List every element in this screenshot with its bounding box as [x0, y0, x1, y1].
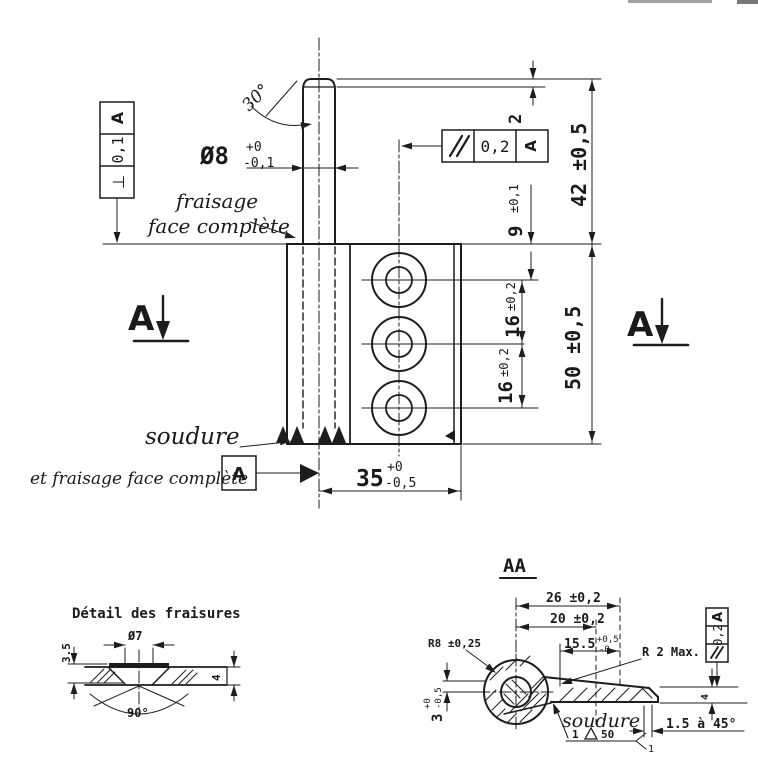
dim-chamfer: 1.5 à 45° [630, 705, 744, 737]
detail-plate-section [85, 650, 227, 712]
fcf-perp-datum: A [108, 111, 127, 124]
dim-chamfer-value: 1.5 à 45° [666, 717, 736, 732]
dim-35-toldn: -0,5 [385, 476, 416, 491]
dim-35-tolup: +0 [387, 460, 403, 475]
dim-20-value: 20 ±0,2 [550, 612, 605, 627]
datum-triangle-icon [300, 464, 319, 483]
dim-155: 15.5 +0,5 -0 [560, 635, 620, 686]
section-arrow-icon [156, 321, 170, 340]
dim-16b-tol: ±0,2 [497, 348, 511, 377]
dim-9-value: 9 [505, 226, 527, 237]
engineering-drawing-page: A 0,1 ⊥ 0,2 A 30° [0, 0, 758, 783]
weld-size: 1 [572, 728, 579, 741]
fcf-par-datum: A [522, 140, 540, 152]
dim-16b-value: 16 [495, 381, 517, 404]
fcf-parallelism: 0,2 A [401, 130, 548, 162]
dim-16a-value: 16 [502, 315, 524, 338]
dim-4-aa: 4 [660, 669, 747, 720]
section-aa-view: AA [423, 555, 747, 755]
section-marker-right-label: A [627, 305, 654, 345]
dim-155-toldn: -0 [599, 645, 610, 655]
dim-angle-value: 90° [127, 706, 149, 720]
dim-35-value: 35 [356, 466, 384, 492]
perpendicularity-icon: ⊥ [109, 175, 128, 189]
dim-dia7-value: Ø7 [127, 629, 142, 643]
section-marker-right: A [627, 299, 688, 345]
dim-155-tolup: +0,5 [597, 635, 619, 645]
parallelism-icon [450, 136, 469, 156]
dim-depth-value: 3.5 [60, 643, 73, 663]
datum-a-label: A [232, 464, 246, 485]
note-fraisage-line1: fraisage [174, 189, 258, 213]
dim-16-lower: 16 ±0,2 [495, 344, 525, 408]
weld-length: 50 [601, 728, 614, 741]
dim-r2-value: R 2 Max. [642, 645, 700, 659]
dim-16-upper: 16 ±0,2 [502, 280, 525, 344]
detail-view: Détail des fraisures [60, 606, 241, 720]
dim-35: 35 +0 -0,5 [319, 446, 461, 500]
dim-depth-35: 3.5 [60, 643, 123, 699]
dim-2: 2 [506, 61, 536, 124]
fcf-par-tolerance: 0,2 [481, 137, 510, 156]
scan-artifacts [628, 0, 758, 4]
dim-155-value: 15.5 [564, 637, 595, 652]
fcf-perp-tolerance: 0,1 [109, 136, 127, 163]
parallelism-icon [711, 647, 723, 658]
countersunk-holes [362, 253, 538, 435]
section-aa-title: AA [503, 555, 526, 577]
chamfer-angle-note: 30° [238, 80, 312, 129]
note-fraisage-complete-label: et fraisage face complète [30, 469, 248, 489]
dim-9-tol: ±0,1 [507, 184, 521, 213]
note-fraisage-line2: face complète [146, 214, 290, 238]
dim-42-value: 42 ±0,5 [567, 123, 591, 207]
note-soudure-label: soudure [145, 424, 240, 450]
note-fraisage: fraisage face complète [146, 189, 297, 241]
dim-3-tolup: +0 [423, 698, 433, 709]
dim-50: 50 ±0,5 [561, 244, 595, 444]
dim-3-value: 3 [430, 714, 446, 722]
dim-3: 3 +0 -0,5 [423, 663, 486, 722]
section-arrow-icon [655, 325, 669, 344]
section-marker-left-label: A [128, 299, 155, 339]
dim-9: 9 ±0,1 [505, 184, 534, 280]
detail-view-title: Détail des fraisures [72, 606, 241, 622]
dim-50-value: 50 ±0,5 [561, 306, 585, 390]
dim-4-value: 4 [700, 694, 711, 700]
dim-dia8-tolup: +0 [246, 140, 262, 155]
note-soudure-fraisage: soudure et fraisage face complète A [30, 424, 319, 490]
dim-42: 42 ±0,5 [567, 79, 595, 244]
weld-callout: soudure 1 50 1 [550, 702, 654, 755]
dim-r8: R8 ±0,25 [428, 637, 498, 676]
dim-2-value: 2 [506, 114, 526, 124]
weld-tail: 1 [648, 744, 654, 755]
dim-16a-tol: ±0,2 [504, 282, 518, 311]
dim-thickness-value: 4 [210, 674, 223, 681]
dim-26-value: 26 ±0,2 [546, 591, 601, 606]
fcf-aa-tolerance: 0,2 [711, 624, 725, 646]
fcf-aa-datum: A [711, 612, 726, 622]
main-view: A 0,1 ⊥ 0,2 A 30° [30, 38, 688, 508]
section-marker-left: A [128, 296, 188, 341]
hatching [90, 669, 197, 684]
dim-dia8-toldn: -0,1 [243, 156, 274, 171]
dim-thickness-4: 4 [210, 651, 240, 701]
dim-3-toldn: -0,5 [434, 687, 444, 709]
fcf-perpendicularity: A 0,1 ⊥ [100, 102, 134, 243]
dim-r8-value: R8 ±0,25 [428, 637, 481, 650]
dim-dia8-value: Ø8 [199, 142, 229, 170]
fcf-parallelism-aa: A 0,2 [706, 608, 728, 687]
